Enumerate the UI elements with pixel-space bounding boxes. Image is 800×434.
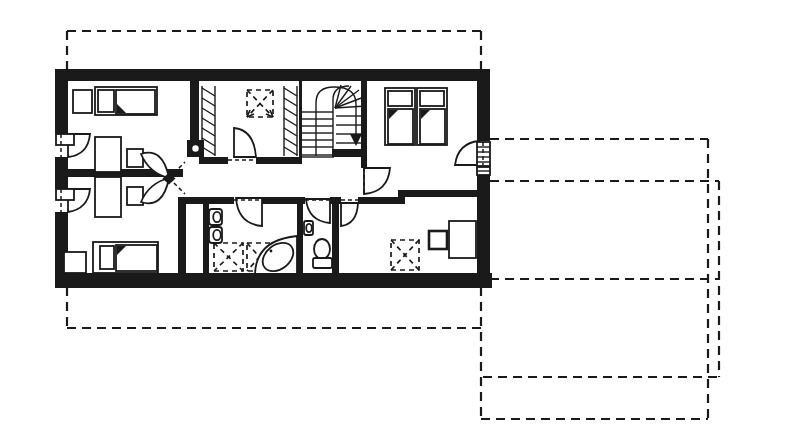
bathtub-drain bbox=[270, 250, 273, 253]
pillow bbox=[420, 91, 444, 106]
toilet-wc bbox=[313, 239, 332, 268]
pillow bbox=[388, 91, 412, 106]
bed bbox=[95, 87, 157, 115]
bed bbox=[417, 88, 447, 145]
pillow bbox=[100, 246, 114, 269]
bidet-bath bbox=[209, 227, 222, 243]
wall-north bbox=[55, 69, 490, 81]
sink-wc bbox=[304, 221, 313, 235]
desk bbox=[95, 137, 121, 172]
wall-stair-east bbox=[361, 77, 367, 168]
toilet-bath bbox=[209, 209, 222, 225]
pillow bbox=[98, 90, 114, 112]
chair bbox=[429, 231, 447, 249]
desk bbox=[95, 177, 121, 217]
wall-stair-west bbox=[299, 81, 302, 157]
bed bbox=[93, 242, 158, 273]
wall-bedroom-east bbox=[178, 197, 186, 274]
nightstand bbox=[73, 90, 92, 113]
desk bbox=[449, 221, 476, 258]
chair bbox=[127, 149, 143, 167]
wall-south bbox=[55, 273, 492, 288]
wall-wc-east bbox=[332, 197, 339, 274]
bed bbox=[385, 88, 415, 145]
wall-dressing-west bbox=[190, 81, 199, 140]
floor-plan-drawing bbox=[0, 0, 800, 434]
floor-plan-page bbox=[0, 0, 800, 434]
wall-study-north bbox=[398, 190, 477, 197]
nightstand bbox=[64, 252, 86, 273]
